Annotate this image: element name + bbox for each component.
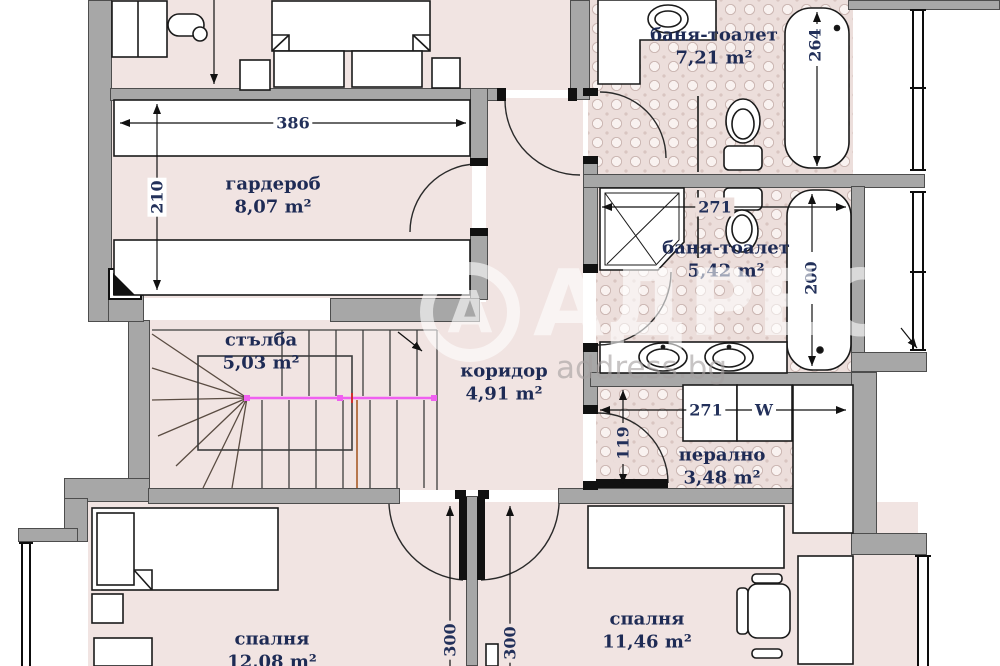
desk-right [798, 556, 853, 664]
floor-plan: баня-тоалет7,21 m² гардероб8,07 m² баня-… [0, 0, 1000, 666]
door-arc-wardrobe [410, 164, 476, 232]
dim-bathtub-mid: 200 [802, 258, 821, 297]
door-arc-laundry [598, 413, 668, 483]
dim-laundry-width: 271 [686, 401, 725, 420]
vanity-mid [600, 342, 787, 373]
dresser-left [94, 638, 152, 666]
door-leaf-bedroom-left [459, 497, 467, 580]
stair-direction-arrow [398, 332, 422, 351]
door-arc-bedroom-right [481, 504, 559, 580]
nightstand-left [240, 60, 270, 90]
dim-laundry-door: 119 [614, 423, 633, 462]
bed-right [588, 506, 784, 568]
room-label-stairs: стълба5,03 m² [222, 329, 299, 376]
desk-top [112, 1, 167, 57]
room-label-wardrobe: гардероб8,07 m² [225, 173, 320, 220]
pillow-left [97, 513, 134, 585]
door-arc-bathroom-mid [598, 272, 671, 345]
room-label-laundry: перално3,48 m² [679, 444, 766, 491]
door-arc-bedroom-left [389, 504, 463, 580]
nightstand-bedroom-left [92, 594, 123, 623]
room-label-bedroom-left: спалня12,08 m² [227, 628, 317, 666]
room-label-bathroom-top: баня-тоалет7,21 m² [650, 24, 778, 71]
window-right-top [910, 10, 926, 170]
plan-linework [0, 0, 1000, 666]
door-threshold [486, 644, 498, 666]
dim-wardrobe-width: 386 [273, 114, 312, 133]
dim-bathtub-top: 264 [806, 25, 825, 64]
double-bed [272, 1, 430, 51]
room-label-bedroom-right: спалня11,46 m² [602, 608, 692, 655]
nightstand-right [432, 58, 460, 88]
window-right-mid [910, 192, 926, 350]
office-chair-right-seat [748, 584, 790, 638]
tall-cabinet [793, 385, 853, 533]
room-label-bathroom-mid: баня-тоалет5,42 m² [662, 237, 790, 284]
top-bedroom-furniture [112, 1, 460, 90]
dim-wardrobe-depth: 210 [148, 177, 167, 216]
opening-arrow-right [901, 328, 917, 348]
dim-bathroom-mid-width: 271 [695, 198, 734, 217]
door-leaf-bedroom-right [477, 497, 485, 580]
window-right-bottom [915, 556, 931, 666]
washer-label: W [752, 401, 776, 420]
dim-bedroom-left-door: 300 [441, 620, 460, 659]
door-leaf-laundry [596, 479, 668, 488]
window-left [19, 543, 33, 666]
dim-bedroom-right-door: 300 [501, 623, 520, 662]
room-label-corridor: коридор4,91 m² [460, 360, 548, 407]
door-arc-bathroom-top [600, 92, 666, 158]
office-chair-right-back [737, 588, 748, 634]
door-arc-top-bedroom [505, 100, 580, 175]
toilet-top-tank [724, 146, 762, 170]
